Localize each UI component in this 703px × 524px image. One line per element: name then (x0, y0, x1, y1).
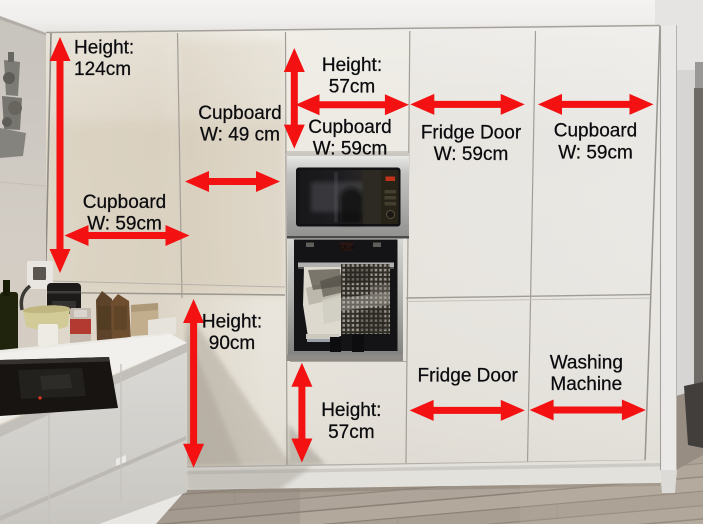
svg-text:Height:57cm: Height:57cm (321, 400, 381, 443)
svg-text:Height:124cm: Height:124cm (74, 37, 134, 80)
svg-text:CupboardW: 49 cm: CupboardW: 49 cm (198, 103, 281, 146)
svg-text:CupboardW: 59cm: CupboardW: 59cm (308, 117, 391, 160)
svg-text:13:4: 13:4 (339, 245, 355, 252)
svg-text:Height:57cm: Height:57cm (322, 55, 382, 98)
svg-text:CupboardW: 59cm: CupboardW: 59cm (83, 192, 166, 235)
svg-text:CupboardW: 59cm: CupboardW: 59cm (554, 121, 637, 164)
svg-text:WashingMachine: WashingMachine (550, 353, 623, 396)
svg-text:Height:90cm: Height:90cm (202, 312, 262, 355)
svg-text:Fridge DoorW: 59cm: Fridge DoorW: 59cm (421, 122, 522, 165)
svg-text:Fridge Door: Fridge Door (418, 366, 519, 387)
